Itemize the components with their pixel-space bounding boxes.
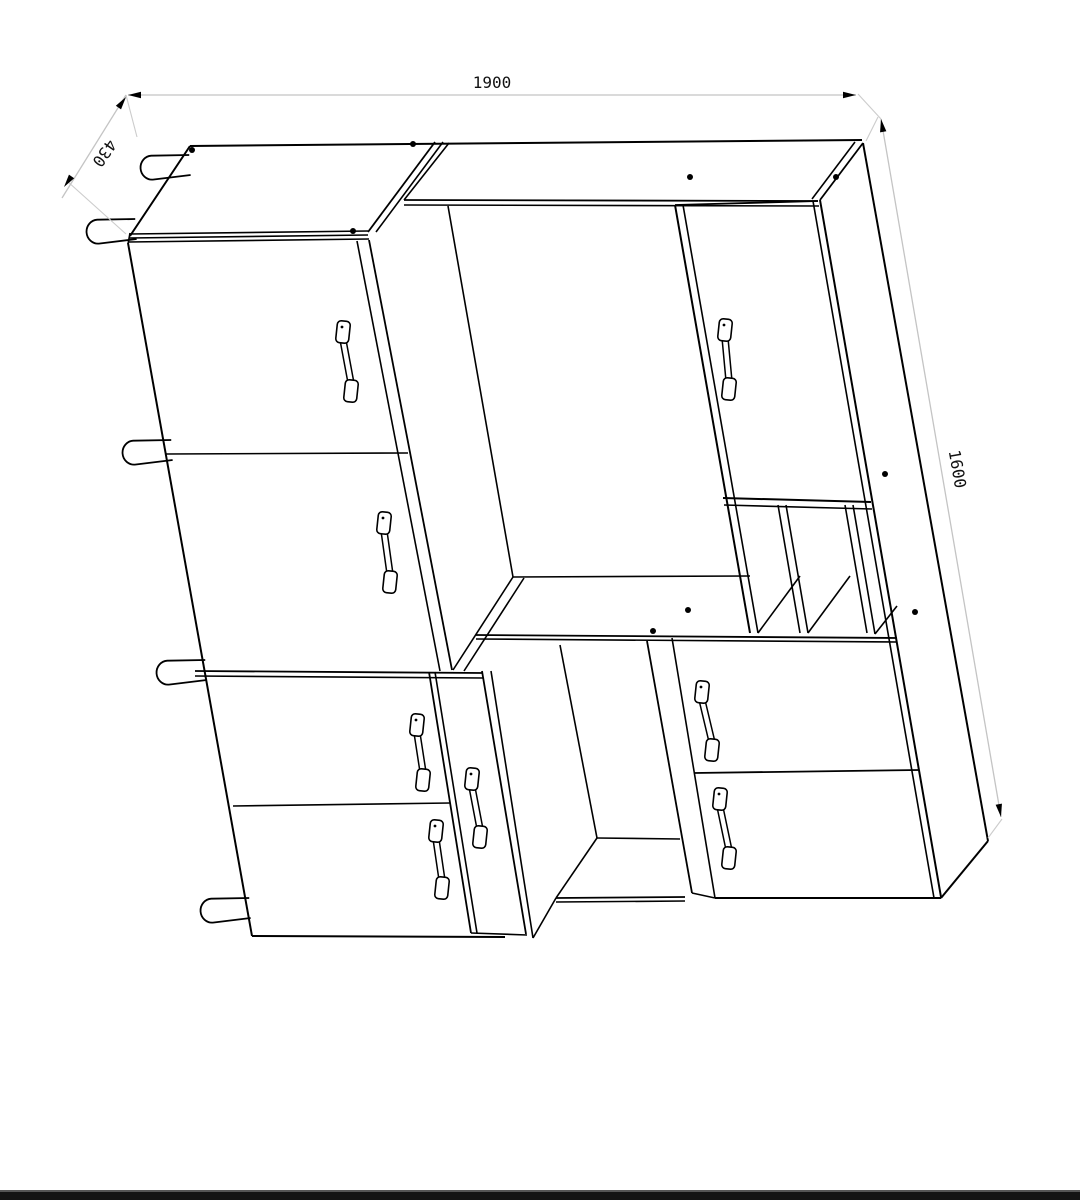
handle-screw-dot [723, 324, 726, 327]
panel-edge-line [404, 200, 818, 201]
handle-top-plate [694, 680, 709, 703]
handle-top-plate [409, 713, 424, 736]
handle-bottom-plate [721, 846, 736, 869]
handle-top-plate [464, 767, 479, 790]
panel-edge-line [513, 576, 750, 577]
handle-bottom-plate [721, 377, 736, 400]
bottom-bar-edge [0, 1190, 1080, 1192]
technical-drawing-page: 19004301600 [0, 0, 1080, 1200]
drill-hole-dot [882, 471, 888, 477]
handle-screw-dot [382, 517, 385, 520]
panel-edge-line [556, 901, 685, 902]
handle-bottom-plate [415, 768, 430, 791]
bottom-bar [0, 1192, 1080, 1200]
handle-screw-dot [470, 773, 473, 776]
drill-hole-dot [650, 628, 656, 634]
panel-edge-line [404, 205, 819, 206]
handle-screw-dot [434, 825, 437, 828]
handle-screw-dot [700, 686, 703, 689]
drawing-background [0, 0, 1080, 1200]
panel-edge-line [252, 936, 505, 937]
drill-hole-dot [410, 141, 416, 147]
handle-top-plate [717, 318, 732, 341]
handle-screw-dot [718, 793, 721, 796]
handle-screw-dot [341, 326, 344, 329]
peg-icon [200, 896, 251, 923]
handle-top-plate [712, 787, 727, 810]
drill-hole-dot [833, 174, 839, 180]
handle-bottom-plate [434, 876, 449, 899]
handle-bottom-plate [343, 379, 358, 402]
drill-hole-dot [685, 607, 691, 613]
panel-edge-line [556, 897, 685, 898]
handle-bottom-plate [472, 825, 487, 848]
handle-screw-dot [415, 719, 418, 722]
drill-hole-dot [912, 609, 918, 615]
handle-top-plate [376, 511, 391, 534]
panel-edge-line [597, 838, 680, 839]
drill-hole-dot [189, 147, 195, 153]
handle-bottom-plate [382, 570, 397, 593]
drill-hole-dot [687, 174, 693, 180]
drill-hole-dot [350, 228, 356, 234]
cabinet-technical-drawing: 19004301600 [0, 0, 1080, 1200]
panel-edge-line [166, 453, 408, 454]
dimension-label: 1900 [473, 73, 512, 92]
handle-top-plate [335, 320, 350, 343]
handle-bottom-plate [704, 738, 719, 761]
handle-top-plate [428, 819, 443, 842]
